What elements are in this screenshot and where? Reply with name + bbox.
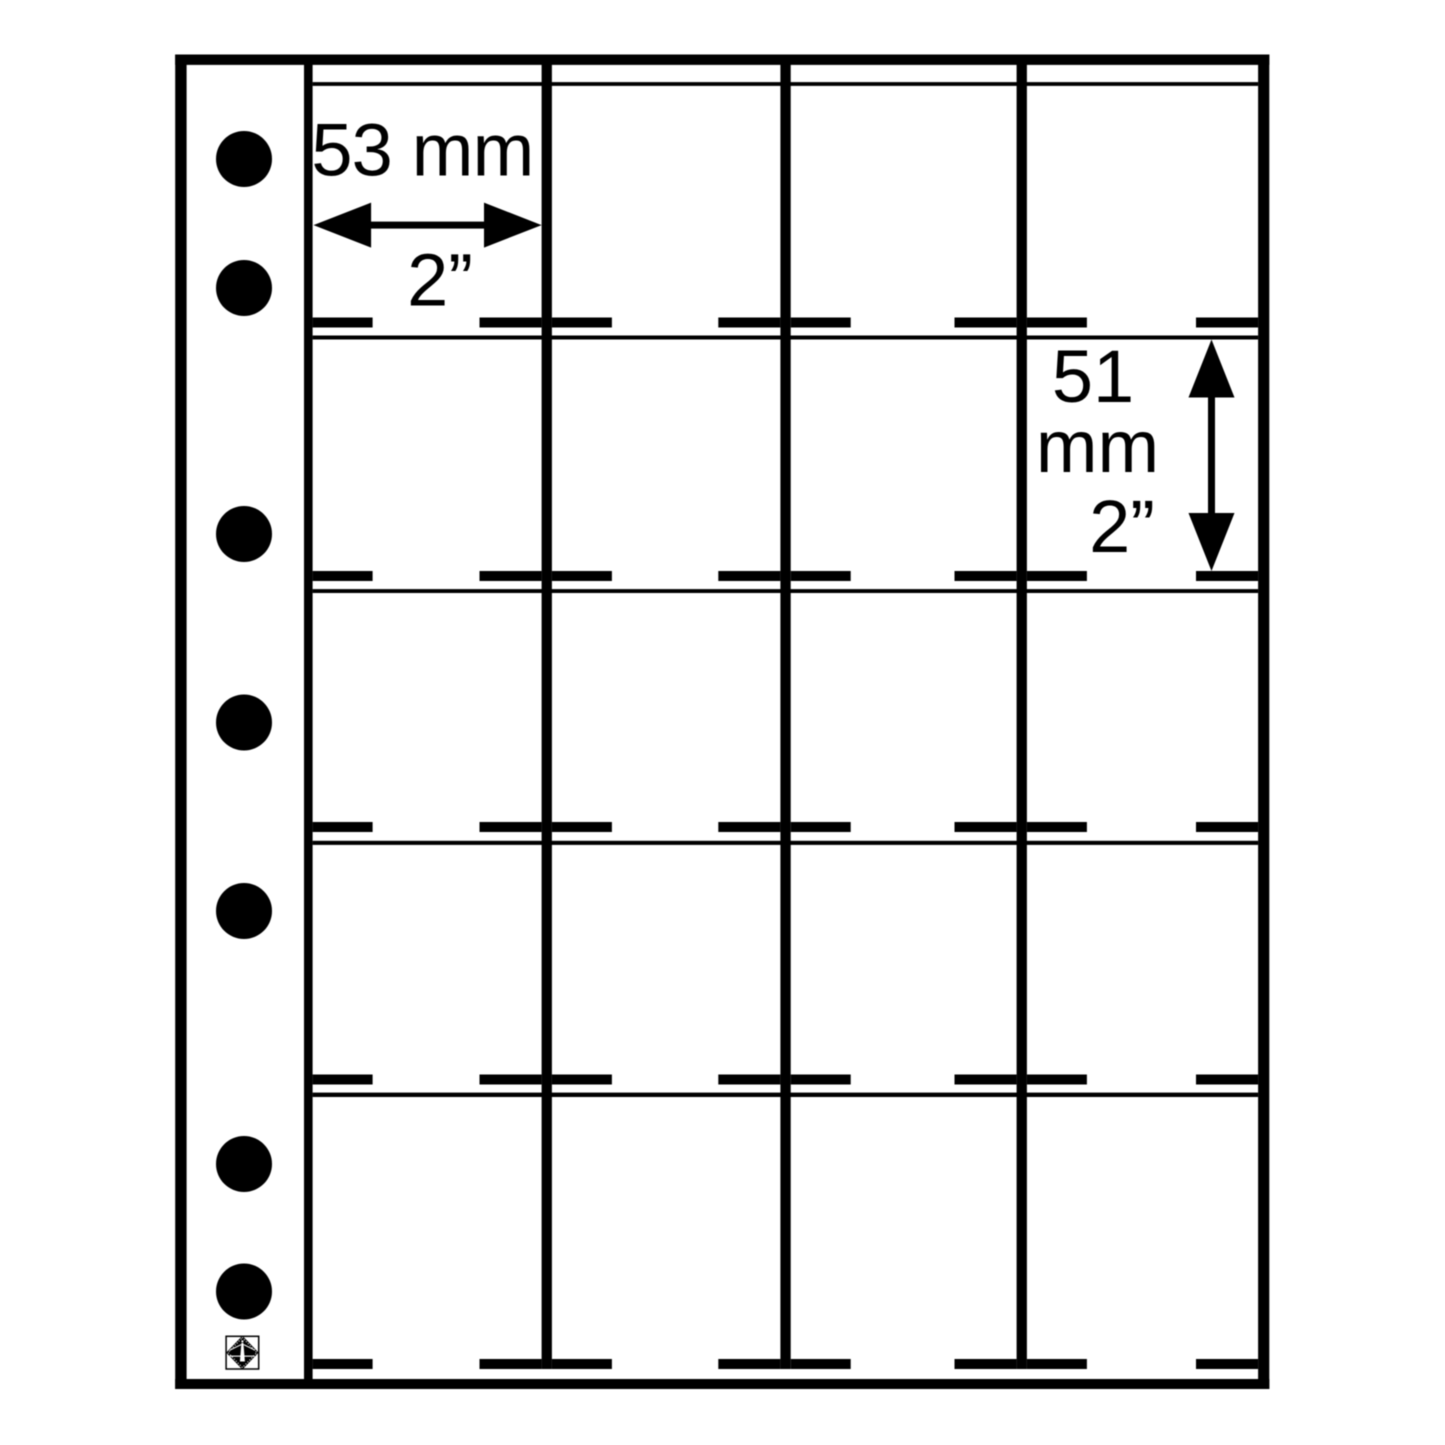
svg-text:53 mm: 53 mm (311, 109, 533, 192)
svg-text:mm: mm (1036, 405, 1159, 488)
svg-text:2”: 2” (407, 239, 473, 322)
svg-text:2”: 2” (1089, 485, 1155, 568)
